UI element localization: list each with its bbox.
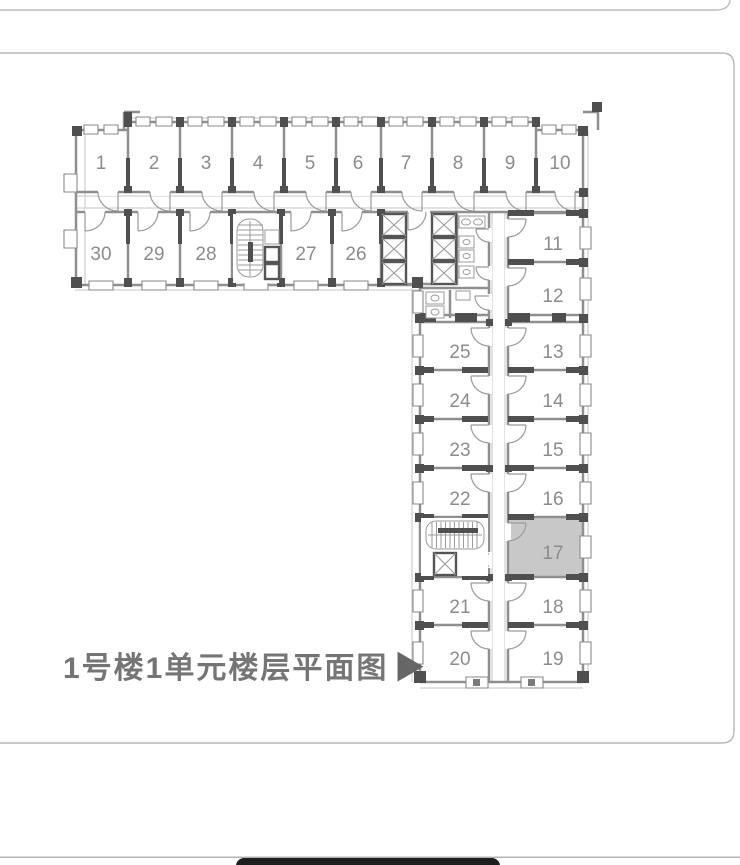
room-label-26: 26 <box>345 244 366 265</box>
screenshot-canvas: 1 2 3 4 5 6 7 8 9 10 11 12 13 14 15 16 1… <box>0 0 740 865</box>
room-label-23: 23 <box>449 440 470 461</box>
arrow-right-icon: ▶ <box>394 652 426 685</box>
room-label-15: 15 <box>542 440 563 461</box>
room-label-14: 14 <box>542 391 564 412</box>
room-label-1: 1 <box>96 153 107 174</box>
plan-title: 1号楼1单元楼层平面图▶ <box>63 652 426 685</box>
room-label-13: 13 <box>542 342 563 363</box>
room-label-5: 5 <box>305 153 316 174</box>
home-indicator[interactable] <box>236 858 500 865</box>
room-label-27: 27 <box>295 244 316 265</box>
room-label-17: 17 <box>542 543 563 564</box>
room-label-9: 9 <box>505 153 516 174</box>
card-chrome <box>0 0 734 743</box>
room-label-19: 19 <box>542 649 563 670</box>
room-label-20: 20 <box>449 649 470 670</box>
bottom-hairline <box>0 857 740 859</box>
room-label-6: 6 <box>353 153 364 174</box>
room-label-18: 18 <box>542 597 563 618</box>
room-label-3: 3 <box>201 153 212 174</box>
room-label-24: 24 <box>449 391 471 412</box>
room-label-29: 29 <box>143 244 164 265</box>
room-label-25: 25 <box>449 342 470 363</box>
room-label-12: 12 <box>542 286 563 307</box>
room-label-22: 22 <box>449 489 470 510</box>
room-label-10: 10 <box>549 153 570 174</box>
room-label-8: 8 <box>453 153 464 174</box>
staircase-vertical-wing <box>421 518 488 576</box>
room-label-4: 4 <box>253 153 264 174</box>
room-label-28: 28 <box>195 244 216 265</box>
staircase-top-wing <box>233 214 279 283</box>
room-label-11: 11 <box>543 234 563 255</box>
bottom-chrome <box>0 857 740 865</box>
previous-card-bottom-edge <box>0 0 730 10</box>
room-label-2: 2 <box>149 153 160 174</box>
room-label-16: 16 <box>542 489 563 510</box>
plan-title-text: 1号楼1单元楼层平面图 <box>63 652 388 685</box>
image-card[interactable] <box>0 53 734 743</box>
room-label-30: 30 <box>90 244 111 265</box>
room-label-7: 7 <box>401 153 412 174</box>
room-label-21: 21 <box>449 597 470 618</box>
